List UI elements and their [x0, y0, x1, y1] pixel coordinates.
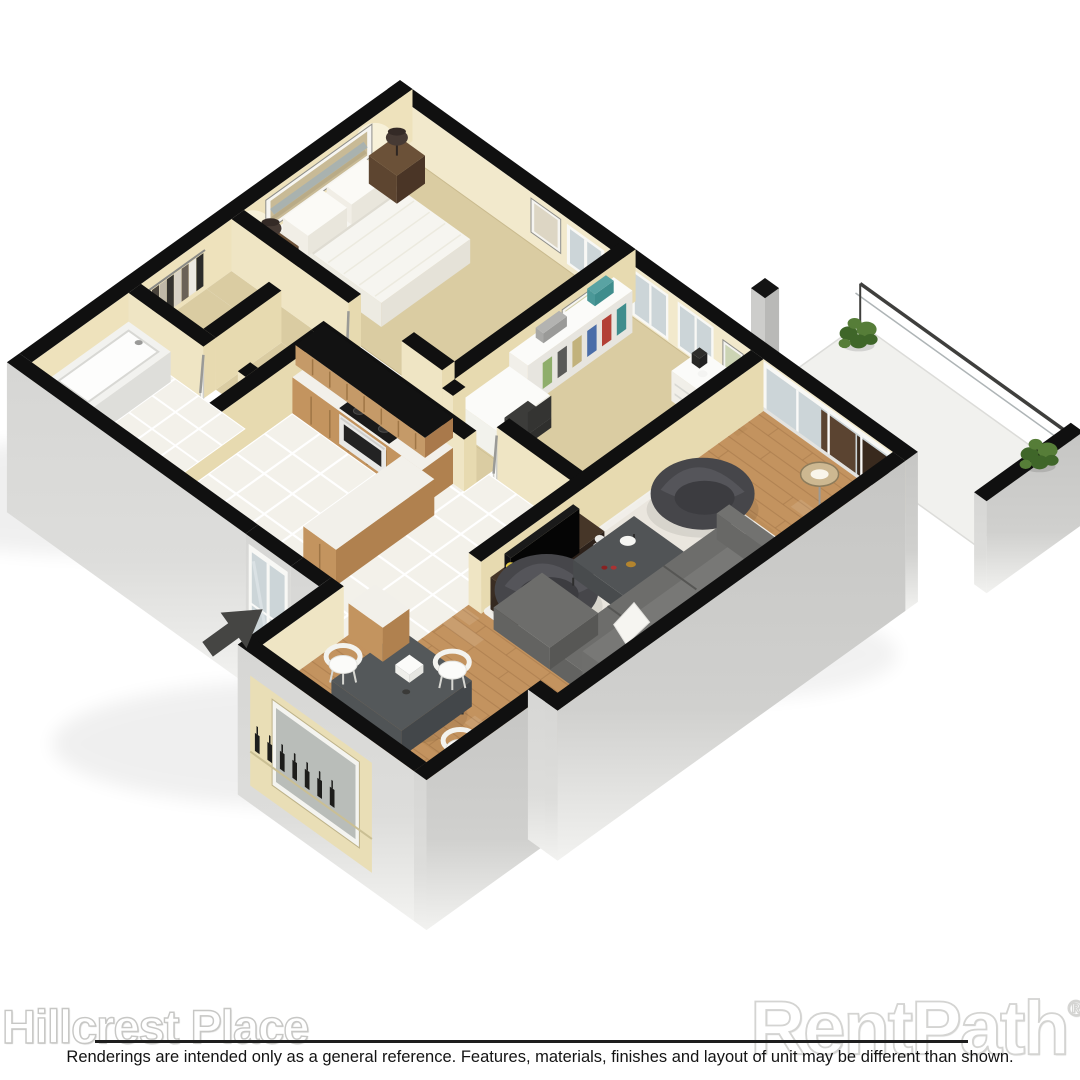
disclaimer-text: Renderings are intended only as a genera… — [0, 1048, 1080, 1067]
divider-line — [95, 1040, 968, 1043]
floorplan-3d-render — [0, 0, 1080, 1080]
registered-mark: ® — [1068, 996, 1080, 1021]
watermark-property-name: Hillcrest Place — [2, 999, 308, 1054]
floorplan-image: Hillcrest Place RentPath® Renderings are… — [0, 0, 1080, 1080]
